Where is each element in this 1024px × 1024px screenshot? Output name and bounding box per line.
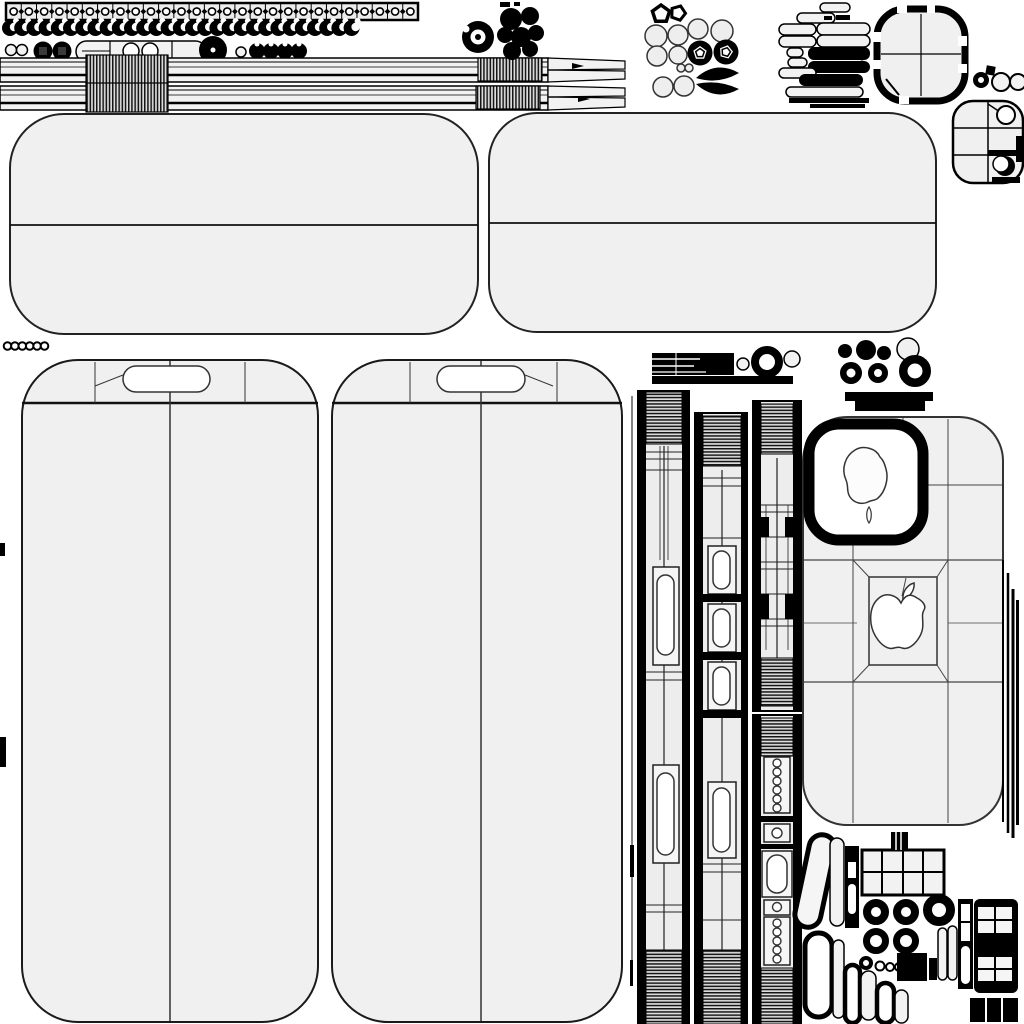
washer-a: [6, 45, 17, 56]
uv-texture-atlas: [0, 0, 1024, 1024]
rail-left-button-hole-a: [657, 575, 674, 655]
rail-mid-hole-b: [713, 609, 730, 647]
shell-back: [332, 360, 622, 1022]
side-rail-2-tip-upper: [548, 86, 625, 97]
lens-disc-5: [647, 46, 667, 66]
button-pill-7: [787, 48, 803, 57]
lens-disc-6: [669, 46, 687, 64]
speaker-cell-5: [978, 957, 994, 968]
sim-bar-window-b: [961, 923, 970, 941]
front-glass-panel: [10, 114, 478, 334]
screw-head-1: [500, 8, 522, 30]
button-black-4: [789, 98, 869, 103]
side-rail-1-tip-lower: [548, 70, 625, 82]
rail-port-coil-bottom: [761, 968, 793, 1024]
button-pill-6: [817, 35, 870, 47]
lens-plate-eye-top: [997, 106, 1015, 124]
clip-blob-3-notch: [283, 42, 288, 47]
screw-bit-a: [500, 2, 510, 7]
screw-head-7: [522, 41, 538, 57]
lens-disc-4: [711, 20, 733, 42]
camera-plate-tick-6: [958, 64, 967, 73]
gasket-pill-b: [833, 940, 844, 1018]
sim-bar-window-a: [961, 904, 970, 921]
grommet-cluster-dot-b: [856, 340, 876, 360]
rail-mid-band-c: [703, 710, 741, 718]
ring-small-a: [876, 962, 885, 971]
lens-dot-b: [685, 64, 693, 72]
block-a: [897, 953, 927, 981]
side-rail-2-coil-right: [476, 86, 540, 109]
margin-mark-a: [0, 543, 5, 556]
shell-back-island: [437, 366, 525, 392]
speaker-cell-6: [996, 957, 1012, 968]
washer-b: [17, 45, 28, 56]
grommet-cluster-ring-a: [843, 365, 859, 381]
bracket-disc: [784, 351, 800, 367]
rail-port-band-b: [761, 844, 793, 849]
camera-plate-tick-7: [899, 96, 909, 104]
rail-mid-hole-a: [713, 551, 730, 589]
rail-port-connector-hole: [767, 855, 787, 893]
gasket-pill-c: [845, 965, 860, 1023]
grommet-b: [897, 903, 915, 921]
button-black-5: [810, 104, 865, 108]
grommet-a: [867, 903, 885, 921]
socket-disc-b-hole: [58, 47, 66, 55]
button-pill-5: [779, 36, 816, 47]
gasket-pill-a: [805, 933, 832, 1017]
camera-plate-tick-5: [958, 36, 967, 46]
button-pill-4: [817, 23, 870, 35]
rail-cam-block-2: [785, 517, 793, 537]
grommet-ring-gap: [463, 26, 470, 33]
screw-head-2: [521, 7, 539, 25]
flash-ring-b: [1010, 74, 1024, 90]
rail-port-mic-hole-b: [773, 903, 782, 912]
grommet-row: [4, 342, 49, 350]
gasket-pill-e: [877, 983, 894, 1023]
lens-plate-edge-a: [1016, 136, 1023, 162]
flash-chip: [985, 65, 995, 75]
battery-stem: [891, 832, 908, 850]
flash-grommet: [976, 75, 987, 86]
bracket-washer: [737, 358, 749, 370]
speaker-cell-4: [996, 921, 1012, 933]
button-pill-8: [788, 58, 807, 67]
edge-strip-mark-b: [630, 960, 633, 986]
gasket-lens-lower: [696, 82, 739, 94]
rail-left-button-hole-b: [657, 773, 674, 855]
apple-logo-body: [871, 595, 925, 649]
grommet-d: [867, 932, 886, 951]
grommet-c: [928, 899, 951, 922]
uv-parts-layer: [0, 2, 1024, 1024]
hub-dot: [211, 48, 216, 53]
button-black-3: [799, 74, 863, 86]
grommet-cluster-bar-a: [845, 392, 933, 401]
rail-cam-block-1: [761, 517, 769, 537]
rail-mid-coil-bottom: [703, 950, 741, 1024]
flash-ring-a: [992, 73, 1010, 91]
button-bit-a: [836, 15, 850, 20]
button-pill-3: [779, 24, 816, 35]
socket-disc-a-hole: [39, 47, 47, 55]
side-rail-1-tip-upper: [548, 58, 625, 70]
gasket-lens-upper: [696, 68, 739, 81]
lens-dot-a: [677, 64, 685, 72]
shell-front-island: [123, 366, 210, 392]
rail-cam-block-3: [761, 594, 769, 619]
camera-plate-tick-3: [872, 32, 881, 42]
grommet-cluster-bar-b: [855, 401, 925, 411]
rail-port-mic-hole: [772, 828, 782, 838]
rail-port-speaker-holes-b: [773, 919, 781, 963]
pentagon-outline-a: [652, 5, 669, 21]
block-b: [929, 958, 937, 980]
slim-pill-c: [948, 926, 957, 980]
washer-c: [236, 47, 246, 57]
black-bar-slot-b: [848, 884, 856, 914]
gasket-pill-f: [895, 990, 908, 1023]
gasket-pill-d: [861, 971, 876, 1020]
speaker-cell-8: [996, 970, 1012, 981]
camera-plate-tick-4: [872, 60, 881, 69]
margin-mark-b: [0, 737, 6, 767]
lens-disc-1: [645, 25, 667, 47]
lens-disc-7: [653, 77, 673, 97]
speaker-cell-3: [978, 921, 994, 933]
button-pill-1: [820, 3, 850, 12]
lens-disc-8: [674, 76, 694, 96]
antenna-strip-bar: [1016, 600, 1019, 825]
rail-mid-coil-top: [703, 416, 741, 466]
camera-plate-tick-2: [927, 4, 935, 13]
ring-small-b: [886, 963, 894, 971]
grommet-e: [897, 932, 916, 951]
black-bar-slot-a: [848, 862, 856, 878]
rail-cam-block-4: [785, 594, 793, 619]
rail-port-coil-top: [761, 718, 793, 756]
screw-head-6: [503, 42, 521, 60]
screw-head-3: [497, 27, 513, 43]
uv-atlas-canvas: [0, 0, 1024, 1024]
rail-port-band-a: [761, 816, 793, 822]
rail-left-coil-top: [646, 392, 682, 444]
slim-pill-a: [830, 838, 844, 926]
screw-bit-b: [514, 2, 520, 6]
grommet-ring-dot: [475, 34, 481, 40]
edge-strip-mark-a: [630, 845, 634, 877]
rail-mid-hole-c: [713, 667, 730, 705]
camera-plate-tick-1: [897, 4, 907, 13]
side-rail-1-coil-left: [86, 55, 168, 84]
grommet-cluster-dot-a: [838, 344, 852, 358]
bracket-grommet: [755, 350, 779, 374]
lens-plate-edge-b: [992, 177, 1020, 183]
pentagon-outline-b: [672, 6, 686, 20]
button-bit-b: [824, 16, 832, 20]
speaker-cell-1: [978, 907, 994, 919]
button-pill-10: [786, 87, 863, 97]
rail-mid-band-a: [703, 594, 741, 602]
rail-mid-band-b: [703, 652, 741, 660]
camera-bump-drop: [867, 507, 872, 523]
eyelet-small: [861, 958, 871, 968]
grommet-cluster-ring-c: [903, 359, 927, 383]
clip-blob-1-notch: [255, 42, 260, 47]
screw-head-5: [528, 25, 544, 41]
lens-disc-3: [688, 19, 708, 39]
clip-blob-4-notch: [297, 42, 302, 47]
speaker-cell-7: [978, 970, 994, 981]
rail-left-coil-bottom: [646, 950, 682, 1024]
rail-cam-coil-top: [761, 404, 793, 454]
slim-pill-b: [938, 928, 947, 980]
sim-bar-window-c: [961, 946, 970, 984]
clip-blob-2-notch: [269, 42, 274, 47]
lens-plate-eye-bottom: [993, 156, 1009, 172]
side-rail-2-coil-left: [86, 83, 168, 112]
grommet-cluster-dot-c: [877, 346, 891, 360]
c-clip-row: [2, 18, 361, 36]
grommet-cluster-ring-b: [871, 366, 885, 380]
speaker-cell-2: [996, 907, 1012, 919]
rail-mid-hole-d: [713, 788, 730, 852]
rail-cam-coil-bottom: [761, 658, 793, 706]
lens-disc-2: [668, 25, 688, 45]
side-rail-1-coil-right: [478, 58, 542, 81]
block-row: [970, 998, 1018, 1022]
